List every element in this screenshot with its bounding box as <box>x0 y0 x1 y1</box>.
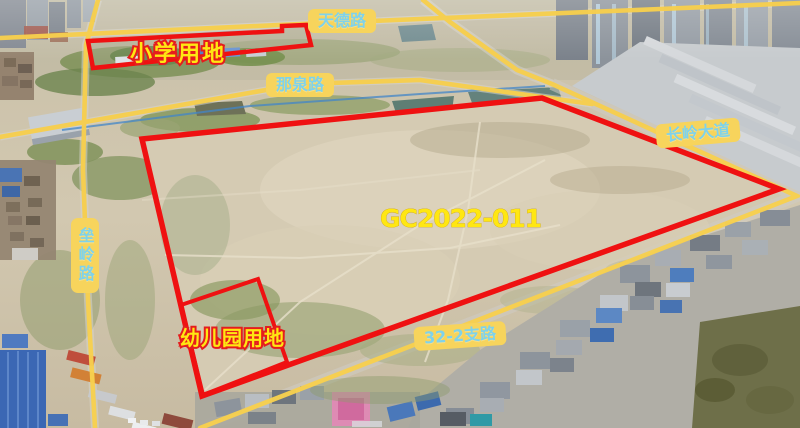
road-line-tiande <box>0 3 800 38</box>
school-plot-label: 小学用地 <box>130 41 226 67</box>
kindergarten-plot-label: 幼儿园用地 <box>180 326 285 350</box>
annotated-aerial-photo: 小学用地 幼儿园用地 GC2022-011 天德路 那泉路 长岭大道 垒岭路 3… <box>0 0 800 428</box>
parcel-id-label: GC2022-011 <box>380 204 541 233</box>
road-label-naquan: 那泉路 <box>266 73 334 97</box>
annotation-overlay: 小学用地 幼儿园用地 GC2022-011 <box>0 0 800 428</box>
road-label-tiande: 天德路 <box>308 9 376 33</box>
road-label-leiling: 垒岭路 <box>71 218 99 293</box>
